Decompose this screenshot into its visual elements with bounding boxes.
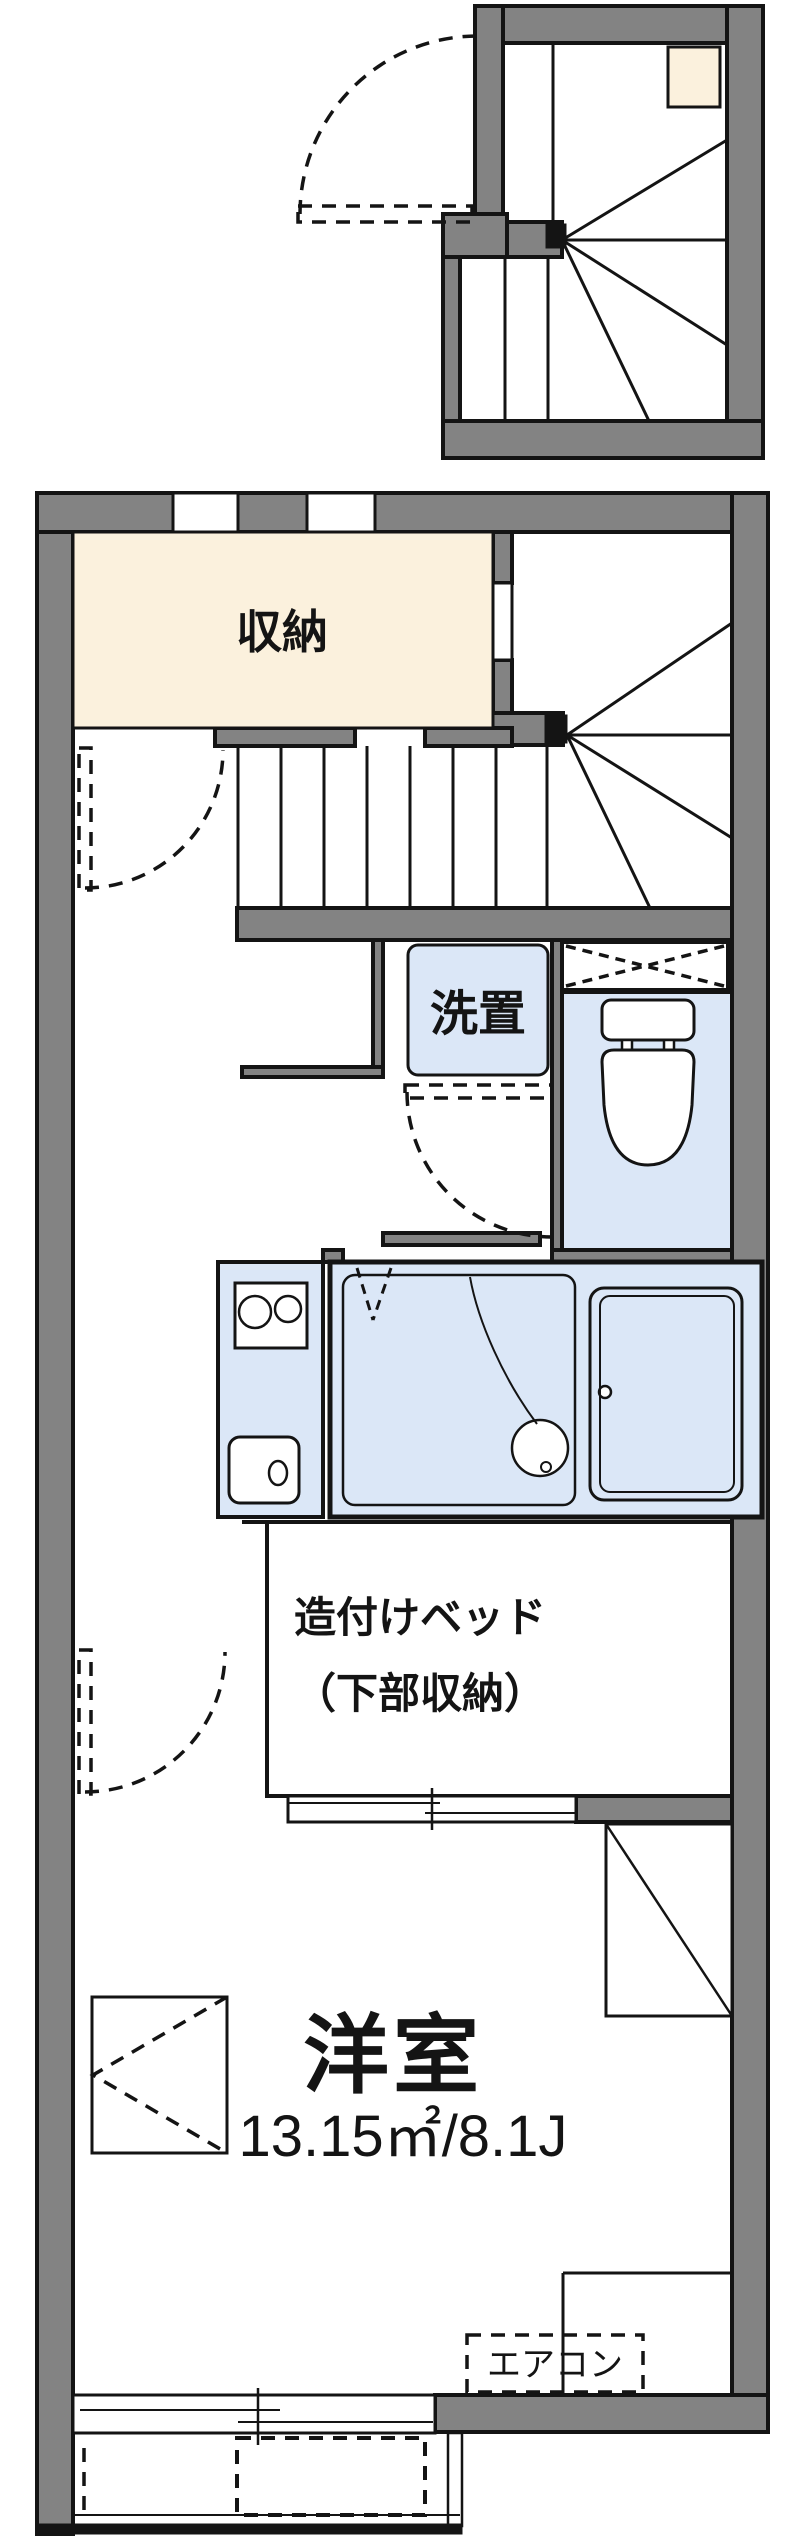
room-name-label: 洋室 bbox=[303, 2008, 483, 2104]
laundry-label: 洗置 bbox=[430, 988, 526, 1041]
wall-top bbox=[37, 493, 768, 532]
storage-bottom-wall bbox=[425, 728, 512, 746]
window-top-2 bbox=[307, 493, 375, 532]
wall-left bbox=[37, 493, 73, 2534]
stair-bottom-wall bbox=[237, 908, 732, 940]
wall-step bbox=[443, 214, 507, 257]
balcony-dashed-space bbox=[237, 2438, 425, 2515]
aircon-label: エアコン bbox=[487, 2346, 623, 2384]
floor-plan-page: 収納 洗置 造付けベッド （下部収納） 洋室 13.15㎡/8.1J エアコン bbox=[0, 0, 800, 2539]
stove-burner-left bbox=[239, 1296, 271, 1328]
floor-plan-drawing: 収納 洗置 造付けベッド （下部収納） 洋室 13.15㎡/8.1J エアコン bbox=[0, 0, 800, 2539]
side-window bbox=[92, 1997, 227, 2153]
room-door-arc bbox=[85, 1652, 225, 1792]
storage-door-leaf bbox=[79, 748, 91, 890]
kitchen-sink bbox=[229, 1437, 299, 1503]
wall bbox=[475, 6, 503, 216]
shelf-crossbox bbox=[562, 942, 728, 990]
plan-root: 収納 洗置 造付けベッド （下部収納） 洋室 13.15㎡/8.1J エアコン bbox=[37, 6, 768, 2534]
toilet-bowl bbox=[602, 1050, 694, 1165]
basin-drain bbox=[541, 1462, 551, 1472]
toilet-tank bbox=[602, 1000, 694, 1040]
stove-burner-right bbox=[275, 1296, 301, 1322]
cream-areas bbox=[73, 47, 720, 728]
storage-bottom-wall bbox=[215, 728, 355, 746]
bed-label-2: （下部収納） bbox=[294, 1670, 546, 1717]
window-bottom bbox=[73, 2395, 435, 2433]
wash-basin bbox=[512, 1420, 568, 1476]
wall bbox=[475, 6, 763, 43]
washroom-door-arc bbox=[407, 1092, 552, 1237]
balcony-bottom-edge bbox=[37, 2524, 462, 2534]
bed-label-1: 造付けベッド bbox=[294, 1594, 546, 1641]
storage-label: 収納 bbox=[236, 606, 328, 658]
storage-side-window bbox=[493, 583, 512, 660]
bathroom-unit bbox=[330, 1262, 762, 1517]
washroom-wall bbox=[373, 940, 383, 1077]
entry-door-arc bbox=[300, 36, 478, 214]
storage-right-wall bbox=[493, 532, 512, 583]
room-door-leaf bbox=[79, 1650, 91, 1794]
wall bbox=[727, 6, 763, 458]
storage-right-wall bbox=[493, 660, 512, 713]
window-top-1 bbox=[173, 493, 238, 532]
built-in-bed bbox=[267, 1522, 732, 1796]
bed-bottom-wall bbox=[576, 1796, 732, 1822]
wall bbox=[443, 421, 763, 458]
wall-bottom-right bbox=[435, 2395, 768, 2432]
washroom-wall bbox=[242, 1067, 383, 1077]
washroom-wall bbox=[383, 1233, 540, 1245]
balcony-side-wall bbox=[448, 2433, 462, 2526]
sink-drain bbox=[269, 1461, 287, 1485]
room-size-label: 13.15㎡/8.1J bbox=[239, 2104, 568, 2169]
storage-door-arc bbox=[85, 750, 223, 888]
newel-post-1f bbox=[545, 715, 567, 743]
entry-step bbox=[668, 47, 720, 107]
washroom-door-leaf bbox=[405, 1085, 552, 1098]
